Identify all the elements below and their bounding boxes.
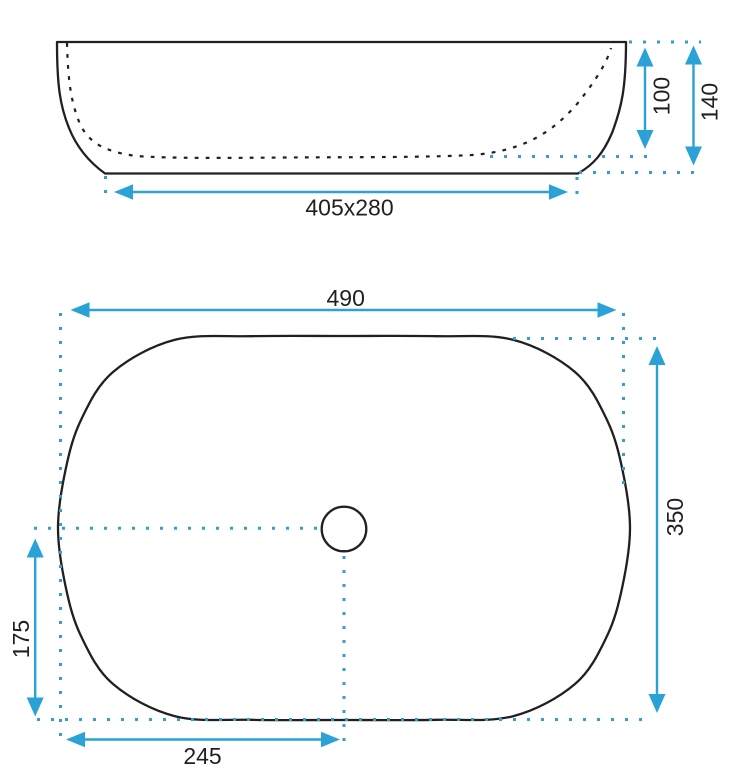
svg-text:100: 100 <box>649 77 675 115</box>
svg-text:490: 490 <box>327 285 365 311</box>
svg-text:350: 350 <box>662 498 688 536</box>
svg-text:140: 140 <box>697 83 723 121</box>
svg-text:245: 245 <box>183 743 221 769</box>
svg-text:405x280: 405x280 <box>305 195 393 221</box>
svg-text:175: 175 <box>8 620 34 658</box>
